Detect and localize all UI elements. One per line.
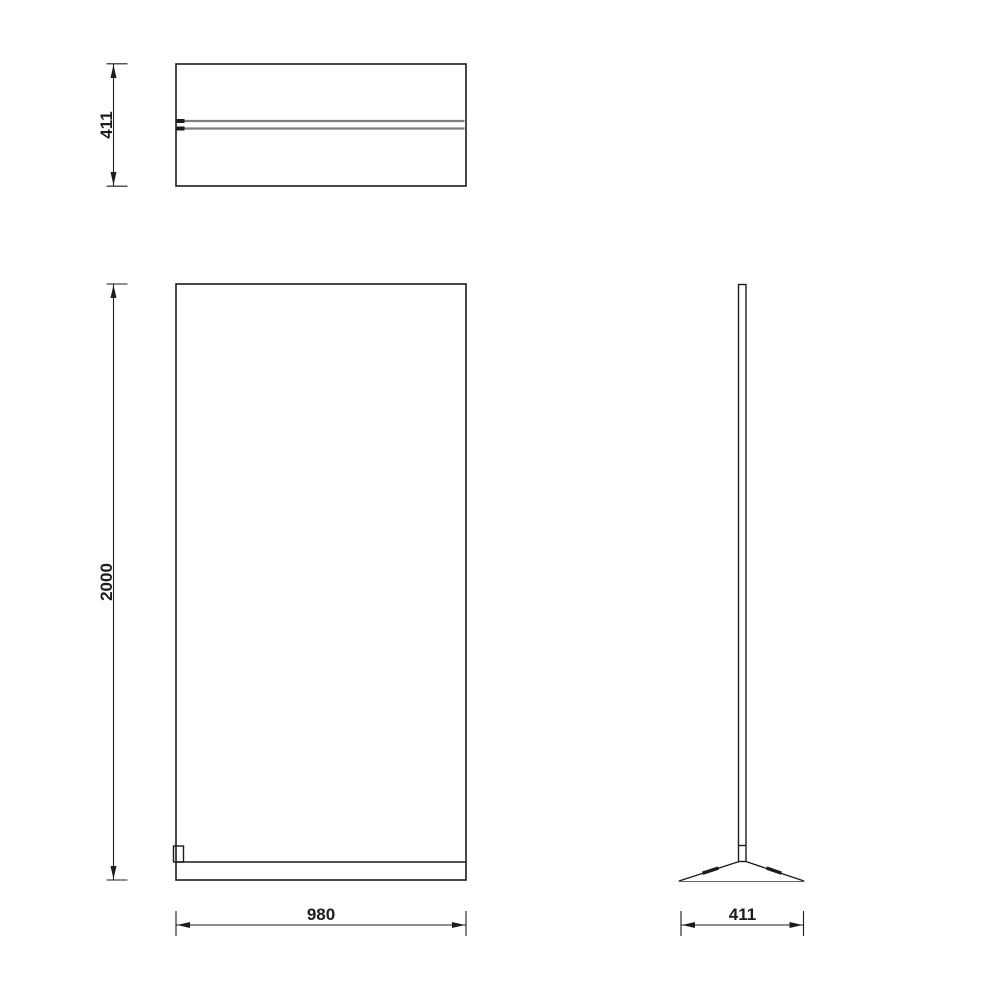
dimension-top-depth-label: 411 bbox=[97, 111, 116, 138]
technical-drawing-svg: 411 2000 980 bbox=[0, 0, 1000, 1000]
dimension-base-depth-label: 411 bbox=[729, 905, 756, 924]
front-view bbox=[174, 284, 467, 880]
side-view-panel bbox=[739, 285, 747, 862]
arrow-right-icon bbox=[452, 922, 465, 928]
dimension-height: 2000 bbox=[97, 284, 128, 880]
dimension-top-depth: 411 bbox=[97, 64, 128, 186]
front-view-outline bbox=[176, 284, 466, 880]
side-view bbox=[679, 285, 805, 882]
arrow-down-icon bbox=[111, 172, 117, 185]
top-view bbox=[176, 64, 466, 186]
dimension-width: 980 bbox=[176, 905, 466, 936]
dimension-height-label: 2000 bbox=[97, 563, 116, 601]
side-view-foot-right-dash bbox=[767, 868, 782, 873]
dimension-base-depth: 411 bbox=[681, 905, 804, 936]
dimension-width-label: 980 bbox=[307, 905, 335, 924]
front-view-left-latch bbox=[174, 846, 184, 862]
arrow-left-icon bbox=[682, 922, 695, 928]
arrow-left-icon bbox=[177, 922, 190, 928]
arrow-up-icon bbox=[111, 65, 117, 78]
arrow-up-icon bbox=[111, 285, 117, 298]
arrow-down-icon bbox=[111, 866, 117, 879]
arrow-right-icon bbox=[790, 922, 803, 928]
technical-drawing-page: 411 2000 980 bbox=[0, 0, 1000, 1000]
side-view-foot-left-dash bbox=[703, 868, 719, 873]
top-view-outline bbox=[176, 64, 466, 186]
